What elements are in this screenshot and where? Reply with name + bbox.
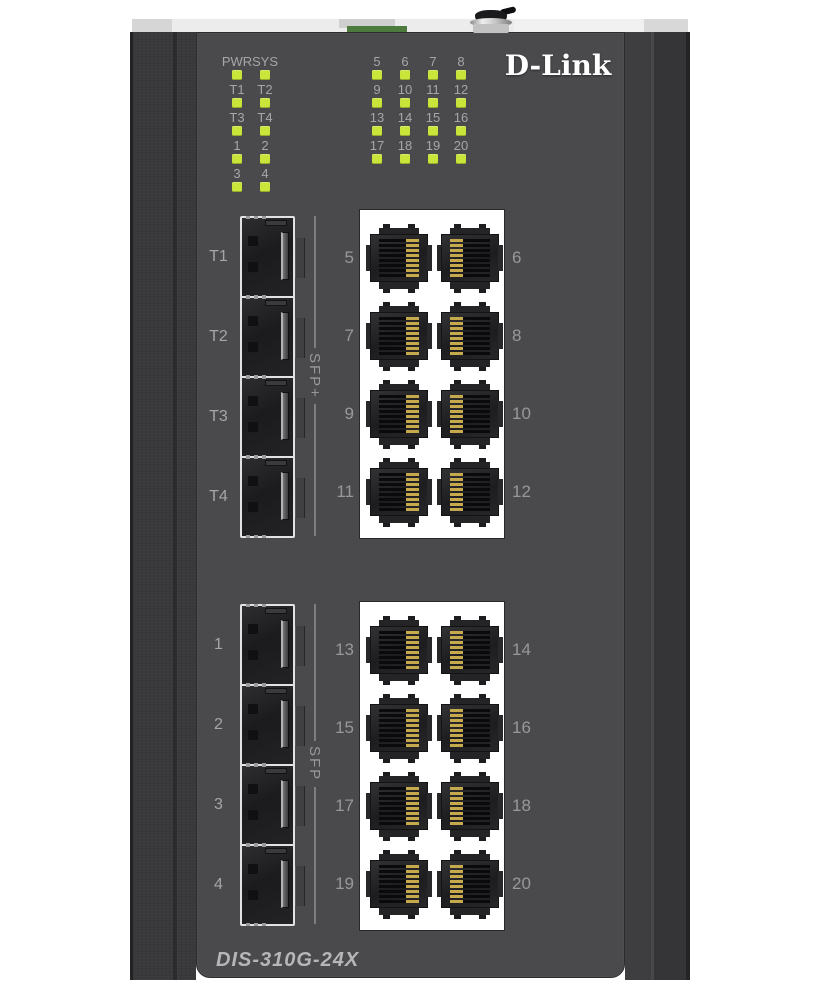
rj45-jack-body xyxy=(441,782,499,830)
sfp-cage-flap xyxy=(265,768,287,774)
rj45-jack xyxy=(366,694,432,762)
rj45-jack-bottom-tab xyxy=(450,830,490,837)
rj45-pins xyxy=(379,865,419,903)
sfp-latch-tab xyxy=(295,626,305,666)
rj45-jack-bottom-tab xyxy=(450,674,490,681)
led-label: 11 xyxy=(426,83,440,97)
port-number-right: 6 xyxy=(512,248,521,268)
rj45-pins xyxy=(379,631,419,669)
rj45-rows-upper: 5 6 7 xyxy=(332,209,542,526)
sfp-latch-bail xyxy=(281,620,289,668)
sfp-plus-group-label: SFP+ xyxy=(306,353,323,399)
port-number-left: 11 xyxy=(332,482,354,502)
top-edge-band xyxy=(132,19,688,32)
led-label: T3 xyxy=(229,111,244,125)
rj45-pins xyxy=(450,787,490,825)
led-indicator: 17 xyxy=(363,139,391,167)
sfp-latch-bail xyxy=(281,472,289,520)
sfp-port-label: T2 xyxy=(206,328,231,346)
sfp-port-label: 2 xyxy=(206,716,231,734)
sfp-cage-flap xyxy=(265,220,287,226)
status-led-icon xyxy=(400,98,410,108)
port-number-right: 18 xyxy=(512,796,531,816)
rj45-pins xyxy=(379,709,419,747)
sfp-cage xyxy=(240,456,295,538)
sfp-latch-tab xyxy=(295,238,305,278)
port-number-right: 8 xyxy=(512,326,521,346)
sfp-cage xyxy=(240,376,295,458)
sfp-cage-inner-detail xyxy=(248,864,258,874)
model-name: DIS-310G-24X xyxy=(216,949,359,972)
status-led-icon xyxy=(428,70,438,80)
port-number-left: 9 xyxy=(332,404,354,424)
rj45-panel-upper: 5 6 7 xyxy=(332,209,542,536)
led-label: 5 xyxy=(373,55,380,69)
status-led-icon xyxy=(456,154,466,164)
sfp-cage xyxy=(240,296,295,378)
left-mounting-rail xyxy=(130,32,196,980)
led-indicator: 1 xyxy=(223,139,251,167)
rj45-jack xyxy=(366,380,432,448)
led-indicator: 3 xyxy=(223,167,251,195)
rj45-rows-lower: 13 14 15 xyxy=(332,601,542,918)
led-indicator: 15 xyxy=(419,111,447,139)
sfp-latch-bail xyxy=(281,232,289,280)
status-led-icon xyxy=(232,154,242,164)
led-indicator: T2 xyxy=(251,83,279,111)
rj45-port-row: 5 6 xyxy=(332,224,542,292)
led-label: 15 xyxy=(426,111,440,125)
sfp-cage xyxy=(240,604,295,686)
led-label: 17 xyxy=(370,139,384,153)
led-indicator: 19 xyxy=(419,139,447,167)
status-led-icon xyxy=(372,70,382,80)
led-indicator: 20 xyxy=(447,139,475,167)
grounding-screw-base xyxy=(473,24,509,33)
rj45-jack-bottom-tab xyxy=(379,516,419,523)
port-number-left: 5 xyxy=(332,248,354,268)
led-label: SYS xyxy=(252,55,278,69)
sfp-cage-flap xyxy=(265,300,287,306)
status-led-icon xyxy=(456,70,466,80)
led-label: 18 xyxy=(398,139,412,153)
rj45-pins xyxy=(379,239,419,277)
status-led-icon xyxy=(372,98,382,108)
status-led-icon xyxy=(260,182,270,192)
status-led-icon xyxy=(428,98,438,108)
led-label: 4 xyxy=(261,167,268,181)
led-label: T2 xyxy=(257,83,272,97)
rj45-pins xyxy=(450,473,490,511)
status-led-icon xyxy=(456,98,466,108)
led-label: 16 xyxy=(454,111,468,125)
sfp-latch-bail xyxy=(281,780,289,828)
led-label: 12 xyxy=(454,83,468,97)
rj45-jack-bottom-tab xyxy=(450,360,490,367)
sfp-latch-bail xyxy=(281,312,289,360)
port-number-right: 12 xyxy=(512,482,531,502)
sfp-latch-tab xyxy=(295,706,305,746)
led-indicator: 8 xyxy=(447,55,475,83)
led-indicator: 13 xyxy=(363,111,391,139)
rj45-jack-bottom-tab xyxy=(450,438,490,445)
rj45-jack-bottom-tab xyxy=(450,908,490,915)
rj45-pins xyxy=(379,395,419,433)
rj45-pins xyxy=(450,631,490,669)
status-led-icon xyxy=(232,126,242,136)
led-indicator: 9 xyxy=(363,83,391,111)
rj45-jack xyxy=(437,850,503,918)
rj45-pins xyxy=(379,317,419,355)
rj45-pins xyxy=(450,395,490,433)
rj45-jack-body xyxy=(441,704,499,752)
front-panel: PWR SYS T1 T2 T3 T4 1 2 3 4 5 6 7 8 xyxy=(196,32,625,978)
rj45-jack-body xyxy=(370,782,428,830)
rj45-jack-body xyxy=(441,626,499,674)
led-label: 20 xyxy=(454,139,468,153)
led-label: 8 xyxy=(457,55,464,69)
led-indicator: T4 xyxy=(251,111,279,139)
sfp-group-label: SFP xyxy=(306,746,323,781)
rj45-jack xyxy=(437,616,503,684)
rj45-jack xyxy=(437,694,503,762)
port-number-left: 7 xyxy=(332,326,354,346)
led-indicator: 6 xyxy=(391,55,419,83)
rj45-jack xyxy=(366,850,432,918)
rj45-jack-body xyxy=(441,860,499,908)
led-label: T4 xyxy=(257,111,272,125)
status-led-icon xyxy=(260,126,270,136)
sfp-port-label: T3 xyxy=(206,408,231,426)
sfp-cage-inner-detail xyxy=(248,784,258,794)
led-label: 10 xyxy=(398,83,412,97)
sfp-cage-flap xyxy=(265,688,287,694)
status-led-icon xyxy=(232,98,242,108)
sfp-port-label: 1 xyxy=(206,636,231,654)
led-label: 9 xyxy=(373,83,380,97)
rj45-panel-lower: 13 14 15 xyxy=(332,601,542,928)
rj45-jack xyxy=(366,224,432,292)
sfp-port-label: T1 xyxy=(206,248,231,266)
rj45-jack-body xyxy=(370,860,428,908)
rj45-jack-bottom-tab xyxy=(450,516,490,523)
sfp-cage xyxy=(240,216,295,298)
rj45-port-row: 13 14 xyxy=(332,616,542,684)
bracket-line-segment xyxy=(314,604,316,741)
switch-device-photo: PWR SYS T1 T2 T3 T4 1 2 3 4 5 6 7 8 xyxy=(130,19,690,980)
rj45-port-row: 19 20 xyxy=(332,850,542,918)
sfp-cage-inner-detail xyxy=(248,236,258,246)
sfp-port-label: 3 xyxy=(206,796,231,814)
rj45-jack xyxy=(366,772,432,840)
led-indicator: T1 xyxy=(223,83,251,111)
status-led-icon xyxy=(232,70,242,80)
led-label: PWR xyxy=(222,55,252,69)
sfp-bracket-line: SFP xyxy=(306,604,323,924)
led-indicator: 4 xyxy=(251,167,279,195)
led-label: T1 xyxy=(229,83,244,97)
sfp-cage xyxy=(240,764,295,846)
port-number-right: 16 xyxy=(512,718,531,738)
led-indicator: 18 xyxy=(391,139,419,167)
chassis: PWR SYS T1 T2 T3 T4 1 2 3 4 5 6 7 8 xyxy=(130,32,690,980)
led-label: 2 xyxy=(261,139,268,153)
sfp-plus-section: T1 T2 T3 T4 xyxy=(206,216,336,538)
led-label: 3 xyxy=(233,167,240,181)
status-led-icon xyxy=(372,126,382,136)
sfp-cage-inner-detail xyxy=(248,396,258,406)
led-indicator: T3 xyxy=(223,111,251,139)
sfp-port-label: T4 xyxy=(206,488,231,506)
sfp-latch-tab xyxy=(295,318,305,358)
port-number-right: 14 xyxy=(512,640,531,660)
rj45-jack-body xyxy=(370,626,428,674)
rj45-jack-body xyxy=(370,468,428,516)
led-label: 14 xyxy=(398,111,412,125)
rj45-jack-body xyxy=(441,390,499,438)
rj45-jack xyxy=(437,224,503,292)
led-label: 19 xyxy=(426,139,440,153)
sfp-latch-tab xyxy=(295,398,305,438)
rj45-jack-body xyxy=(441,468,499,516)
led-group-rj45-ports: 5 6 7 8 9 10 11 12 13 14 15 16 17 18 xyxy=(363,55,475,167)
rj45-jack xyxy=(366,458,432,526)
led-indicator: PWR xyxy=(223,55,251,83)
bracket-line-segment xyxy=(314,404,316,536)
rj45-jack-body xyxy=(370,312,428,360)
brand-logo: D-Link xyxy=(497,49,619,82)
sfp-cage-flap xyxy=(265,608,287,614)
led-indicator: 5 xyxy=(363,55,391,83)
sfp-latch-tab xyxy=(295,786,305,826)
rj45-jack-bottom-tab xyxy=(450,752,490,759)
rj45-pins xyxy=(379,473,419,511)
rj45-jack xyxy=(437,458,503,526)
led-label: 13 xyxy=(370,111,384,125)
rj45-jack-body xyxy=(441,234,499,282)
sfp-cage-flap xyxy=(265,460,287,466)
led-label: 1 xyxy=(233,139,240,153)
sfp-latch-bail xyxy=(281,700,289,748)
rj45-jack-bottom-tab xyxy=(379,360,419,367)
rj45-jack-bottom-tab xyxy=(450,282,490,289)
status-led-icon xyxy=(260,98,270,108)
status-led-icon xyxy=(260,70,270,80)
bracket-line-segment xyxy=(314,787,316,924)
rj45-jack-bottom-tab xyxy=(379,908,419,915)
rj45-jack-bottom-tab xyxy=(379,282,419,289)
status-led-icon xyxy=(260,154,270,164)
led-indicator: 16 xyxy=(447,111,475,139)
rj45-jack xyxy=(366,616,432,684)
led-label: 7 xyxy=(429,55,436,69)
sfp-cage-flap xyxy=(265,848,287,854)
led-indicator: 2 xyxy=(251,139,279,167)
sfp-latch-tab xyxy=(295,866,305,906)
led-indicator: SYS xyxy=(251,55,279,83)
port-number-left: 17 xyxy=(332,796,354,816)
led-group-system-and-sfp: PWR SYS T1 T2 T3 T4 1 2 3 4 xyxy=(223,55,279,195)
sfp-latch-bail xyxy=(281,392,289,440)
sfp-cage-inner-detail xyxy=(248,704,258,714)
sfp-section: 1 2 3 4 xyxy=(206,604,336,926)
rj45-pins xyxy=(450,709,490,747)
status-led-icon xyxy=(428,154,438,164)
rj45-jack-bottom-tab xyxy=(379,830,419,837)
led-indicator: 7 xyxy=(419,55,447,83)
rj45-pins xyxy=(450,865,490,903)
port-number-right: 20 xyxy=(512,874,531,894)
sfp-latch-tab xyxy=(295,478,305,518)
grounding-screw xyxy=(466,7,518,35)
sfp-cage-inner-detail xyxy=(248,316,258,326)
rj45-port-row: 9 10 xyxy=(332,380,542,448)
port-number-right: 10 xyxy=(512,404,531,424)
led-indicator: 12 xyxy=(447,83,475,111)
bracket-line-segment xyxy=(314,216,316,348)
rj45-port-row: 11 12 xyxy=(332,458,542,526)
rj45-jack-body xyxy=(370,390,428,438)
port-number-left: 13 xyxy=(332,640,354,660)
rj45-port-row: 17 18 xyxy=(332,772,542,840)
rj45-port-row: 7 8 xyxy=(332,302,542,370)
port-number-left: 15 xyxy=(332,718,354,738)
status-led-icon xyxy=(400,154,410,164)
led-indicator: 10 xyxy=(391,83,419,111)
status-led-icon xyxy=(372,154,382,164)
rj45-port-row: 15 16 xyxy=(332,694,542,762)
led-indicator: 11 xyxy=(419,83,447,111)
rj45-jack-body xyxy=(370,704,428,752)
sfp-cage-inner-detail xyxy=(248,624,258,634)
status-led-icon xyxy=(400,70,410,80)
sfp-plus-bracket-line: SFP+ xyxy=(306,216,323,536)
rj45-jack-bottom-tab xyxy=(379,674,419,681)
status-led-icon xyxy=(232,182,242,192)
sfp-cage xyxy=(240,684,295,766)
rj45-jack-body xyxy=(370,234,428,282)
rj45-pins xyxy=(450,239,490,277)
sfp-cage-flap xyxy=(265,380,287,386)
rj45-jack xyxy=(437,772,503,840)
rj45-jack xyxy=(437,380,503,448)
sfp-latch-bail xyxy=(281,860,289,908)
rj45-jack xyxy=(366,302,432,370)
rj45-pins xyxy=(379,787,419,825)
right-mounting-rail xyxy=(625,32,690,980)
status-led-icon xyxy=(456,126,466,136)
port-number-left: 19 xyxy=(332,874,354,894)
sfp-cage xyxy=(240,844,295,926)
rj45-jack-bottom-tab xyxy=(379,438,419,445)
rj45-jack xyxy=(437,302,503,370)
rj45-jack-bottom-tab xyxy=(379,752,419,759)
rj45-pins xyxy=(450,317,490,355)
sfp-port-label: 4 xyxy=(206,876,231,894)
rj45-jack-body xyxy=(441,312,499,360)
status-led-icon xyxy=(400,126,410,136)
led-indicator: 14 xyxy=(391,111,419,139)
led-label: 6 xyxy=(401,55,408,69)
sfp-cage-inner-detail xyxy=(248,476,258,486)
status-led-icon xyxy=(428,126,438,136)
